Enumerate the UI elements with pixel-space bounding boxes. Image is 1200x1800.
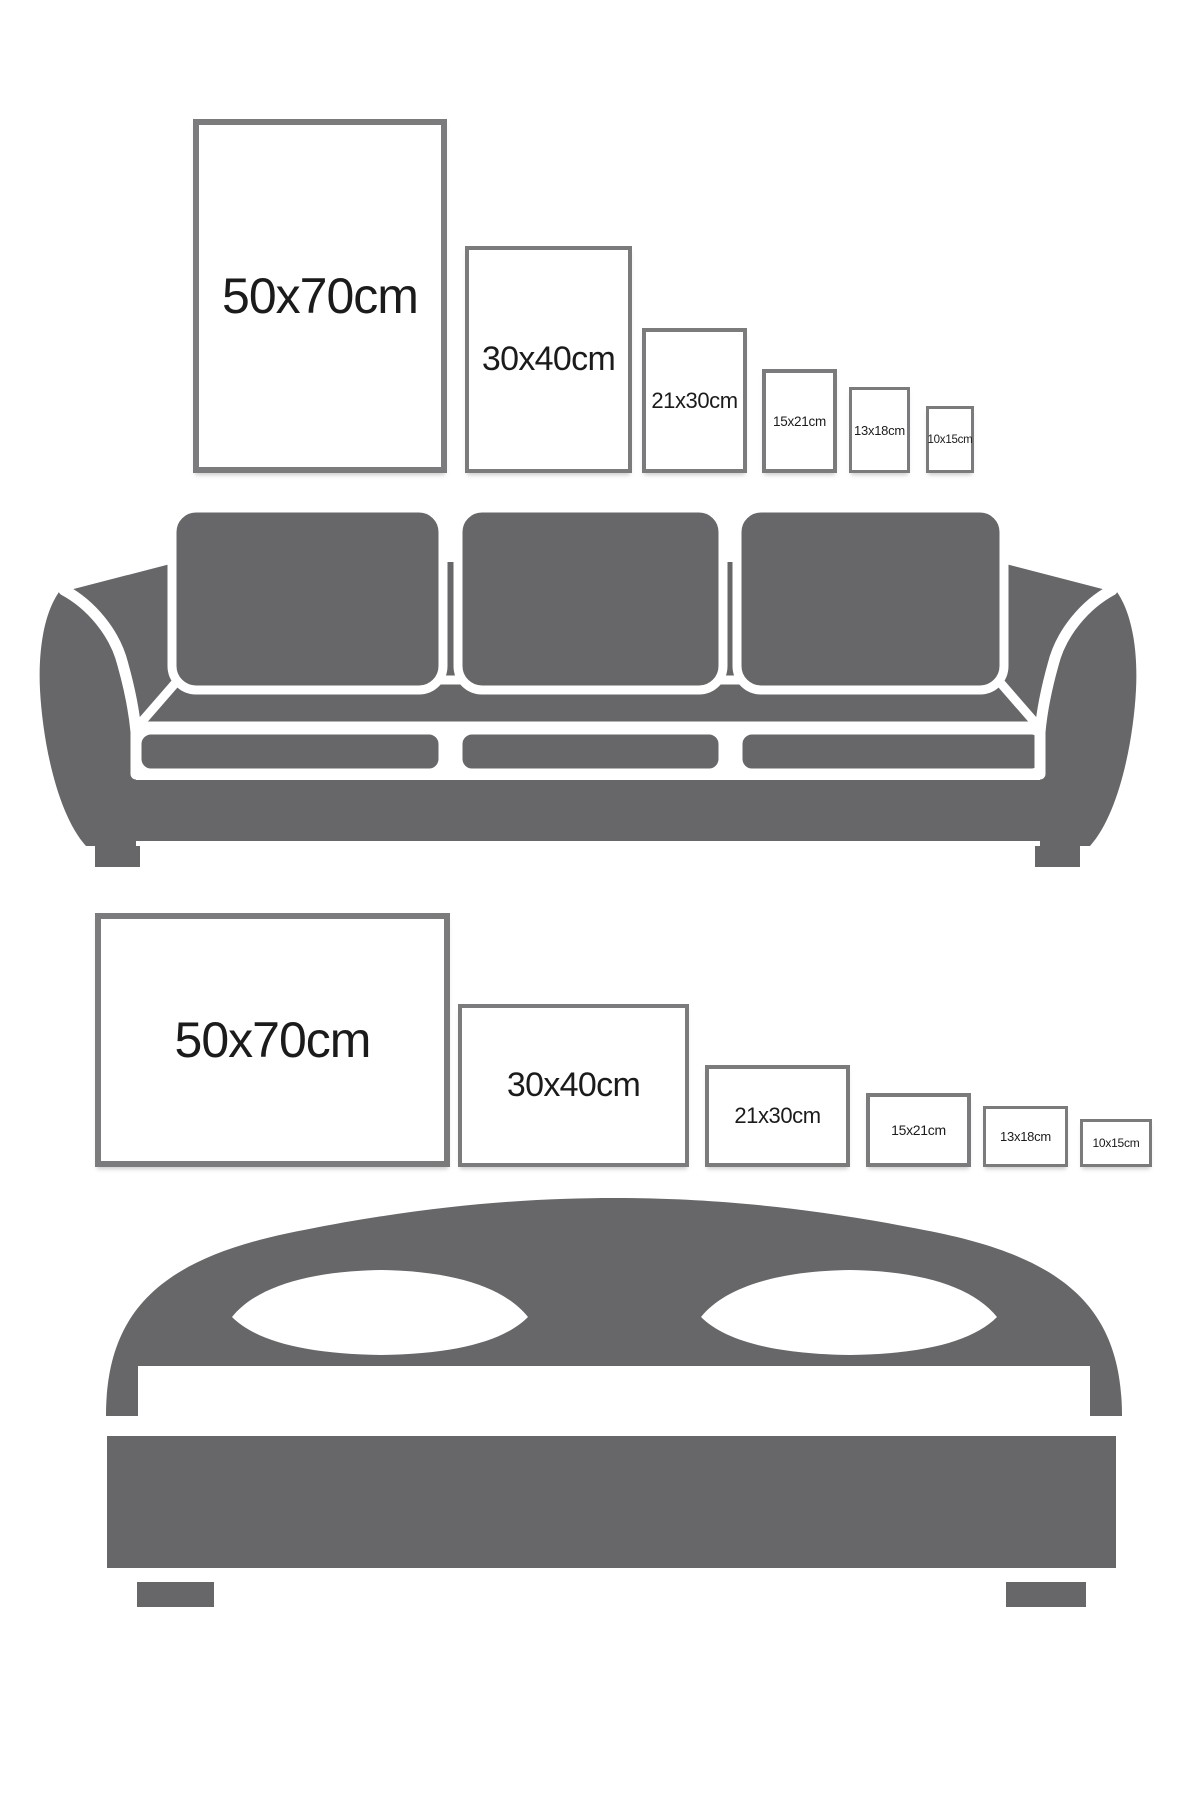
size-frame-sofa-13x18cm: 13x18cm <box>849 387 910 473</box>
size-guide-infographic: 50x70cm30x40cm21x30cm15x21cm13x18cm10x15… <box>0 0 1200 1800</box>
frame-size-label: 50x70cm <box>222 267 418 325</box>
bed-base <box>107 1436 1116 1568</box>
size-frame-bed-30x40cm: 30x40cm <box>458 1004 689 1167</box>
frame-size-label: 21x30cm <box>651 388 737 414</box>
bed-illustration <box>104 1190 1124 1620</box>
frame-size-label: 10x15cm <box>1092 1136 1139 1150</box>
size-frame-sofa-10x15cm: 10x15cm <box>926 406 974 473</box>
size-frame-bed-15x21cm: 15x21cm <box>866 1093 971 1167</box>
size-frame-sofa-50x70cm: 50x70cm <box>193 119 447 473</box>
sofa-back-cushion-right <box>737 508 1004 690</box>
sofa-illustration <box>18 480 1158 872</box>
sofa-back-cushion-center <box>458 508 723 690</box>
sofa-seat-cushion-left <box>137 730 443 773</box>
sofa-back-cushion-left <box>172 508 443 690</box>
size-frame-bed-10x15cm: 10x15cm <box>1080 1119 1152 1167</box>
sofa-foot-left <box>95 846 140 867</box>
bed-foot-right <box>1006 1582 1086 1607</box>
frame-size-label: 13x18cm <box>1000 1129 1051 1144</box>
frame-size-label: 30x40cm <box>482 340 615 379</box>
sofa-foot-right <box>1035 846 1080 867</box>
sofa-base <box>98 780 1078 841</box>
bed-foot-left <box>137 1582 214 1607</box>
frame-size-label: 30x40cm <box>507 1066 640 1105</box>
size-frame-sofa-21x30cm: 21x30cm <box>642 328 747 473</box>
size-frame-bed-50x70cm: 50x70cm <box>95 913 450 1167</box>
size-frame-sofa-30x40cm: 30x40cm <box>465 246 632 473</box>
size-frame-bed-21x30cm: 21x30cm <box>705 1065 850 1167</box>
sofa-seat-cushion-center <box>458 730 723 773</box>
frame-size-label: 13x18cm <box>854 423 905 438</box>
size-frame-bed-13x18cm: 13x18cm <box>983 1106 1068 1167</box>
frame-size-label: 10x15cm <box>927 434 972 446</box>
bed-mattress <box>138 1366 1090 1436</box>
frame-size-label: 15x21cm <box>891 1122 946 1138</box>
frame-size-label: 15x21cm <box>773 414 826 429</box>
frame-size-label: 50x70cm <box>175 1011 371 1069</box>
frame-size-label: 21x30cm <box>734 1103 820 1129</box>
sofa-seat-cushion-right <box>738 730 1045 773</box>
size-frame-sofa-15x21cm: 15x21cm <box>762 369 837 473</box>
